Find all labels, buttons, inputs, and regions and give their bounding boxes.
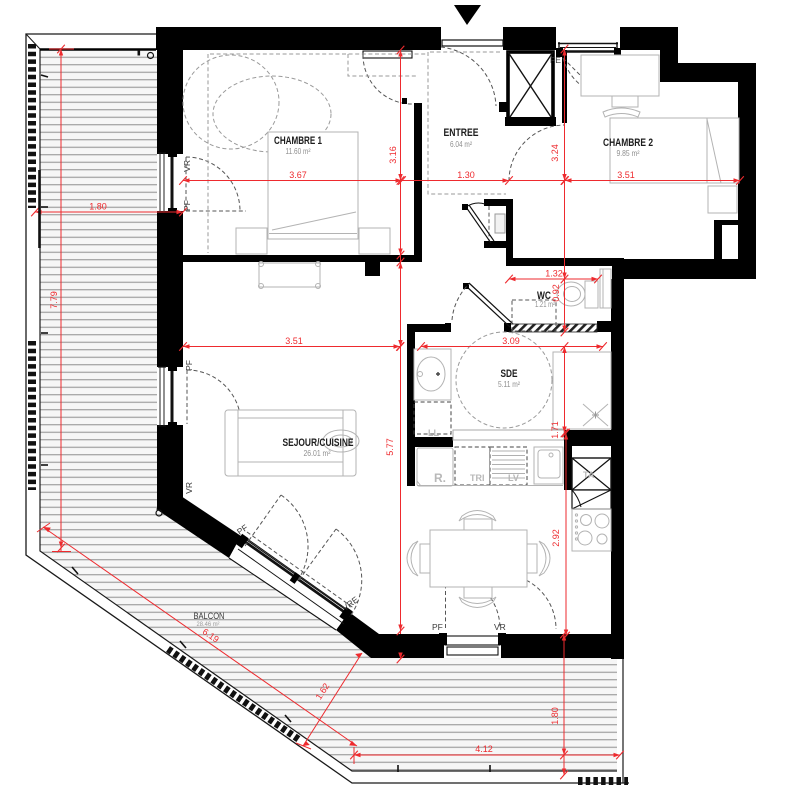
- svg-text:9.85 m²: 9.85 m²: [617, 149, 640, 158]
- svg-text:3.67: 3.67: [289, 170, 307, 180]
- svg-text:3.09: 3.09: [502, 336, 520, 346]
- svg-text:3.16: 3.16: [388, 146, 398, 164]
- svg-text:LV: LV: [508, 473, 519, 483]
- svg-text:SEJOUR/CUISINE: SEJOUR/CUISINE: [283, 437, 354, 449]
- svg-text:1.80: 1.80: [550, 707, 560, 725]
- svg-text:6.04 m²: 6.04 m²: [450, 140, 472, 149]
- svg-text:5.11 m²: 5.11 m²: [498, 380, 520, 389]
- svg-text:1.71: 1.71: [550, 421, 560, 439]
- svg-text:7.79: 7.79: [49, 291, 59, 309]
- svg-text:3.51: 3.51: [617, 170, 635, 180]
- svg-text:5.77: 5.77: [385, 438, 395, 456]
- svg-text:1.30: 1.30: [457, 170, 475, 180]
- svg-text:11.60 m²: 11.60 m²: [286, 147, 311, 156]
- svg-text:1.80: 1.80: [89, 202, 107, 212]
- svg-text:0.92: 0.92: [551, 284, 561, 302]
- svg-text:CHAMBRE 2: CHAMBRE 2: [603, 137, 653, 149]
- svg-text:2.92: 2.92: [551, 529, 561, 547]
- svg-text:PF: PF: [184, 360, 194, 371]
- svg-text:SDE: SDE: [501, 368, 518, 380]
- svg-text:BALCON: BALCON: [194, 611, 225, 621]
- svg-text:3.24: 3.24: [550, 144, 560, 162]
- svg-text:FE: FE: [550, 55, 561, 65]
- svg-text:TA: TA: [583, 470, 595, 480]
- svg-text:PF: PF: [182, 200, 192, 211]
- svg-text:VR: VR: [184, 482, 194, 494]
- svg-text:VR: VR: [182, 160, 192, 172]
- svg-text:LL: LL: [428, 428, 439, 438]
- svg-text:3.51: 3.51: [285, 336, 303, 346]
- svg-text:4.12: 4.12: [475, 744, 493, 754]
- svg-text:PF: PF: [432, 622, 443, 632]
- svg-text:1.32: 1.32: [545, 269, 563, 279]
- svg-text:ENTREE: ENTREE: [444, 127, 479, 139]
- svg-text:R.: R.: [434, 471, 446, 485]
- svg-text:26.01 m²: 26.01 m²: [304, 449, 331, 458]
- svg-text:TRI: TRI: [470, 473, 485, 483]
- svg-text:CHAMBRE 1: CHAMBRE 1: [274, 135, 322, 147]
